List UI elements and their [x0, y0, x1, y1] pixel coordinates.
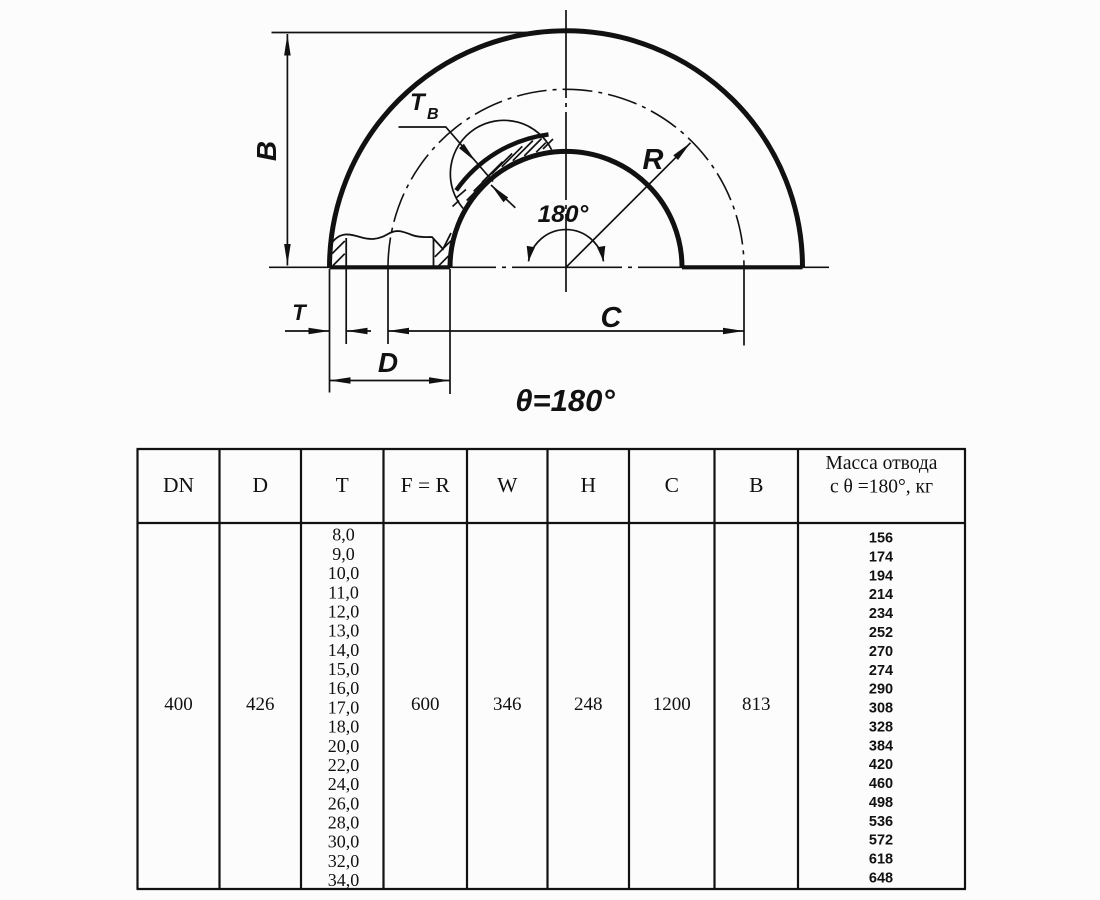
svg-text:536: 536	[869, 814, 893, 830]
svg-text:180°: 180°	[538, 201, 589, 228]
svg-text:194: 194	[869, 568, 893, 584]
svg-text:12,0: 12,0	[328, 602, 360, 622]
svg-text:T: T	[336, 473, 349, 497]
svg-text:156: 156	[869, 531, 893, 547]
svg-text:C: C	[601, 302, 623, 334]
svg-text:234: 234	[869, 606, 893, 622]
svg-text:426: 426	[246, 694, 275, 715]
svg-text:с θ =180°, кг: с θ =180°, кг	[830, 477, 933, 498]
svg-text:9,0: 9,0	[332, 544, 355, 564]
svg-text:328: 328	[869, 719, 893, 735]
svg-text:B: B	[427, 106, 439, 123]
svg-text:618: 618	[869, 852, 893, 868]
svg-text:498: 498	[869, 795, 893, 811]
svg-text:460: 460	[869, 776, 893, 792]
svg-text:D: D	[252, 473, 268, 497]
svg-text:400: 400	[164, 694, 193, 715]
svg-text:F = R: F = R	[401, 473, 451, 497]
svg-text:16,0: 16,0	[328, 678, 360, 698]
svg-text:30,0: 30,0	[328, 832, 360, 852]
svg-text:346: 346	[493, 694, 522, 715]
svg-text:572: 572	[869, 833, 893, 849]
svg-text:24,0: 24,0	[328, 774, 360, 794]
svg-text:384: 384	[869, 738, 893, 754]
svg-text:308: 308	[869, 701, 893, 717]
svg-text:R: R	[643, 144, 664, 176]
svg-text:270: 270	[869, 644, 893, 660]
svg-text:14,0: 14,0	[328, 640, 360, 660]
svg-text:D: D	[378, 347, 398, 378]
svg-text:248: 248	[574, 694, 603, 715]
svg-text:10,0: 10,0	[328, 563, 360, 583]
svg-text:290: 290	[869, 682, 893, 698]
svg-text:T: T	[292, 300, 307, 325]
svg-text:813: 813	[742, 694, 771, 715]
svg-text:26,0: 26,0	[328, 793, 360, 813]
svg-text:11,0: 11,0	[328, 582, 359, 602]
svg-text:274: 274	[869, 663, 893, 679]
svg-text:34,0: 34,0	[328, 870, 360, 890]
svg-text:C: C	[665, 473, 679, 497]
svg-text:W: W	[497, 473, 518, 497]
svg-text:20,0: 20,0	[328, 736, 360, 756]
svg-text:DN: DN	[163, 473, 195, 497]
svg-text:Масса отвода: Масса отвода	[826, 453, 938, 474]
svg-text:600: 600	[411, 694, 440, 715]
svg-text:B: B	[749, 473, 763, 497]
svg-text:22,0: 22,0	[328, 755, 360, 775]
svg-text:1200: 1200	[653, 694, 691, 715]
svg-text:15,0: 15,0	[328, 659, 360, 679]
svg-text:13,0: 13,0	[328, 621, 360, 641]
svg-text:32,0: 32,0	[328, 851, 360, 871]
svg-text:8,0: 8,0	[332, 525, 355, 545]
svg-text:648: 648	[869, 870, 893, 886]
svg-text:214: 214	[869, 587, 893, 603]
svg-text:18,0: 18,0	[328, 717, 360, 737]
svg-text:17,0: 17,0	[328, 697, 360, 717]
svg-text:θ=180°: θ=180°	[515, 383, 615, 418]
svg-text:420: 420	[869, 757, 893, 773]
svg-text:174: 174	[869, 550, 893, 566]
svg-text:252: 252	[869, 625, 893, 641]
svg-text:28,0: 28,0	[328, 813, 360, 833]
svg-text:B: B	[251, 141, 282, 161]
svg-text:T: T	[410, 89, 427, 116]
svg-text:H: H	[580, 473, 596, 497]
